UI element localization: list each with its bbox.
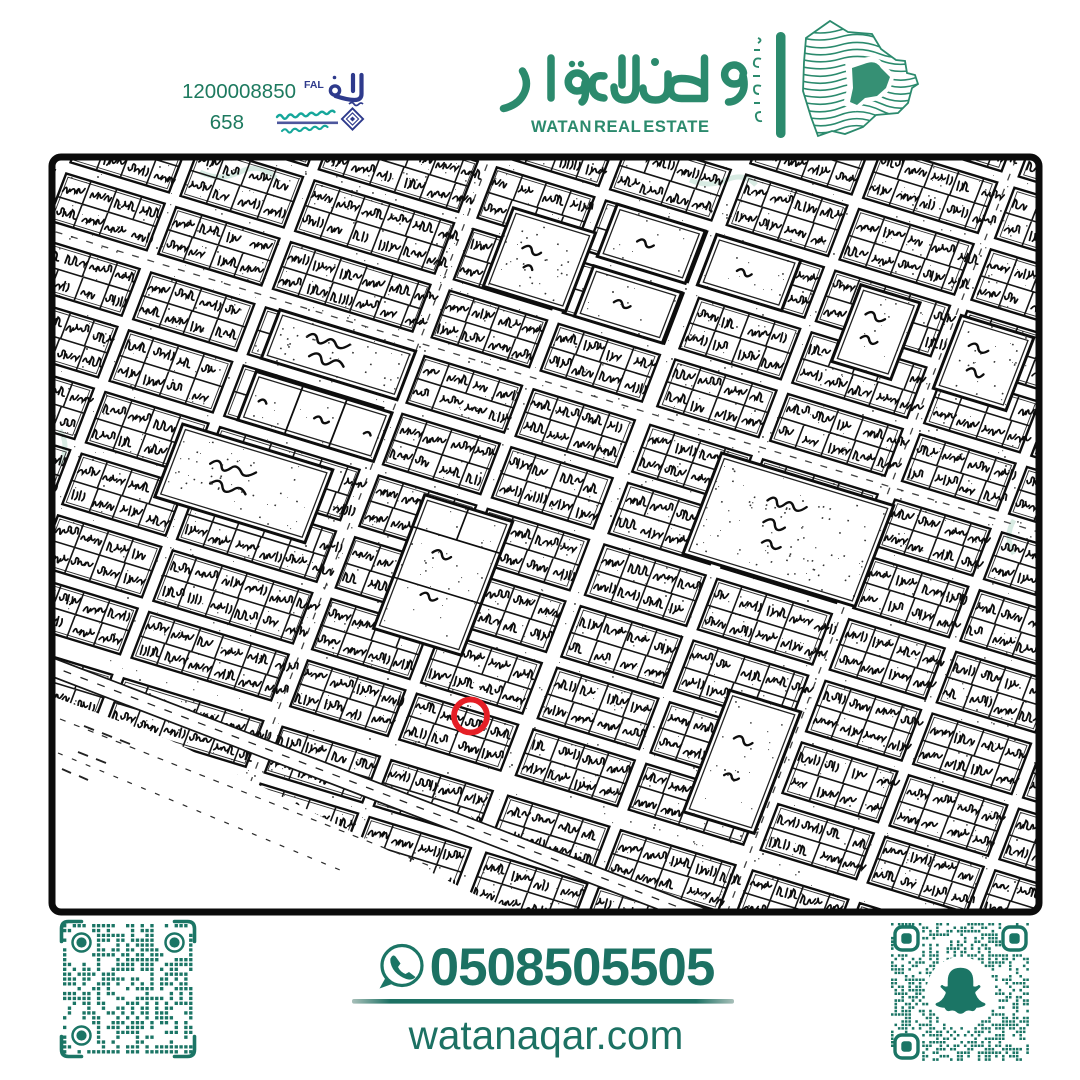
svg-text:0508505505: 0508505505 [430,938,715,997]
svg-text:1200008850: 1200008850 [182,80,296,103]
svg-text:FAL: FAL [304,79,324,91]
svg-text:658: 658 [210,111,244,134]
svg-text:watanaqar.com: watanaqar.com [408,1012,684,1058]
svg-text:WATAN REAL ESTATE: WATAN REAL ESTATE [531,118,710,136]
